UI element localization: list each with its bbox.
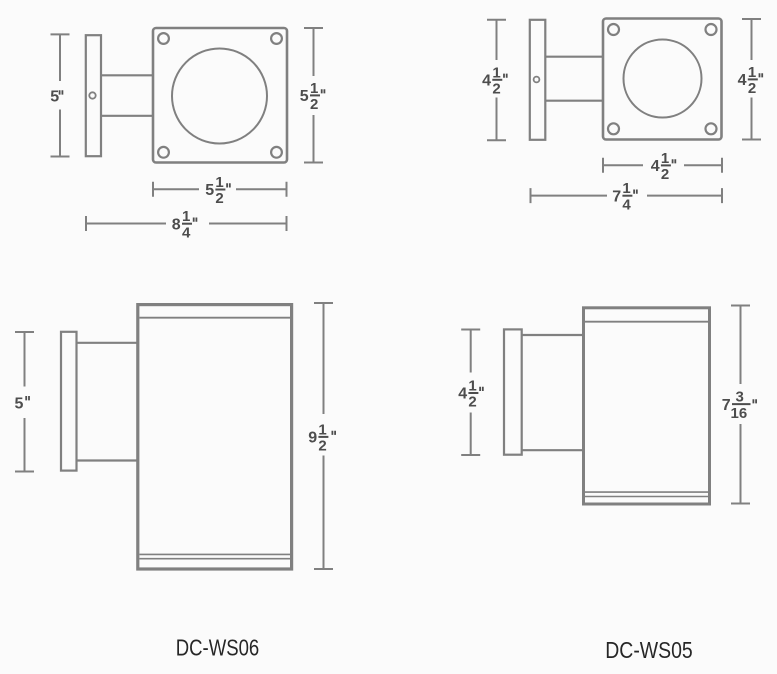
svg-text:1: 1	[215, 174, 223, 191]
svg-text:5: 5	[300, 88, 309, 105]
svg-text:1: 1	[748, 64, 756, 81]
svg-text:2: 2	[310, 96, 318, 113]
svg-text:2: 2	[661, 166, 669, 183]
svg-text:4: 4	[182, 224, 191, 241]
svg-text:5: 5	[15, 396, 24, 413]
svg-text:1: 1	[468, 378, 476, 395]
svg-text:5: 5	[205, 182, 214, 199]
svg-text:1: 1	[182, 208, 190, 225]
svg-text:2: 2	[215, 190, 223, 207]
svg-text:9: 9	[308, 430, 317, 447]
svg-text:4: 4	[482, 73, 491, 90]
svg-text:7: 7	[722, 397, 731, 414]
svg-text:4: 4	[651, 158, 660, 175]
svg-text:1: 1	[622, 180, 630, 197]
svg-text:1: 1	[310, 80, 318, 97]
svg-text:2: 2	[748, 80, 756, 97]
svg-text:4: 4	[738, 72, 747, 89]
svg-text:1: 1	[318, 421, 326, 438]
svg-text:4: 4	[622, 196, 631, 213]
svg-text:2: 2	[318, 438, 326, 455]
svg-text:2: 2	[492, 81, 500, 98]
svg-text:1: 1	[661, 150, 669, 167]
svg-text:DC-WS06: DC-WS06	[176, 635, 260, 661]
svg-text:5: 5	[50, 89, 59, 106]
svg-text:DC-WS05: DC-WS05	[605, 637, 693, 663]
svg-text:4: 4	[458, 386, 467, 403]
svg-text:3: 3	[736, 389, 744, 406]
svg-text:16: 16	[731, 405, 748, 422]
svg-text:7: 7	[612, 188, 621, 205]
svg-text:8: 8	[172, 216, 181, 233]
svg-text:1: 1	[492, 64, 500, 81]
svg-text:2: 2	[468, 394, 476, 411]
